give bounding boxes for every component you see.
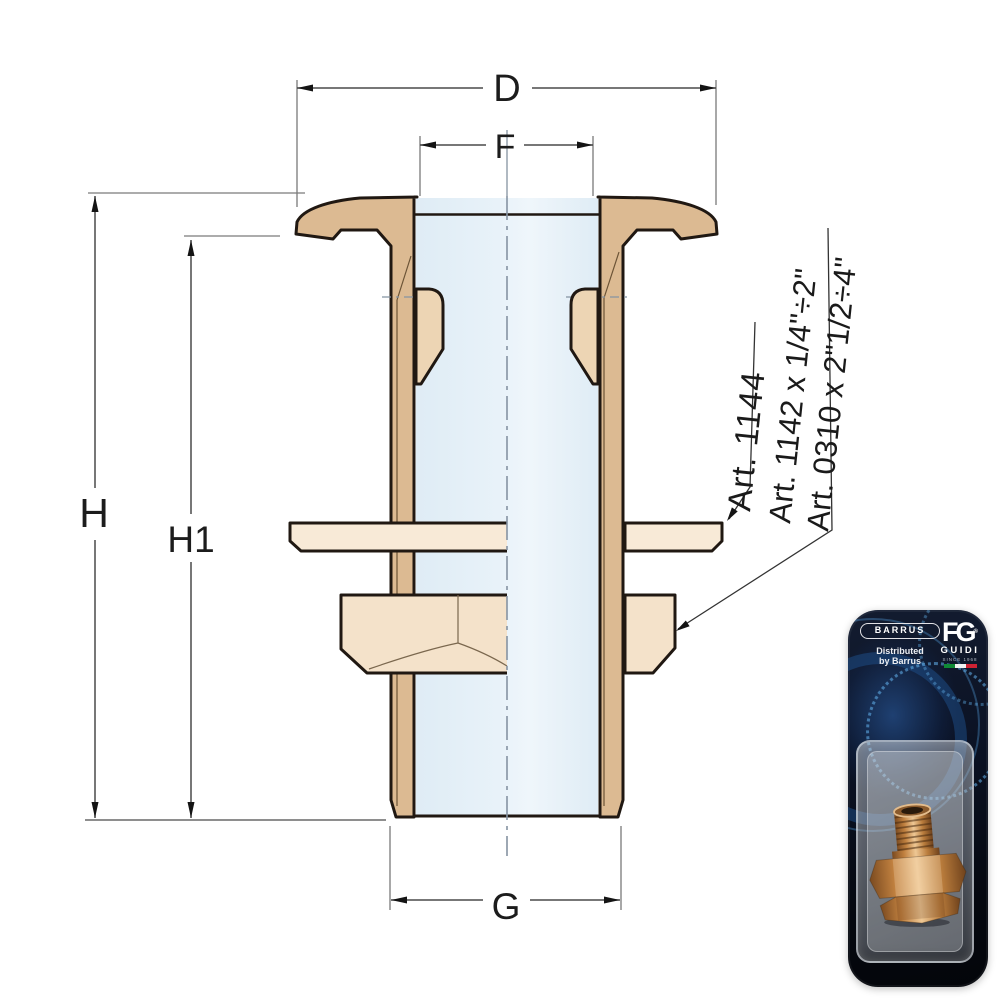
label-G: G (492, 886, 521, 927)
distributed-by-text: Distributed by Barrus (854, 646, 946, 666)
flange-right (598, 197, 717, 817)
barrus-badge: BARRUS (860, 623, 940, 639)
label-D: D (493, 68, 520, 110)
article-annotations: Art. 1144 Art. 1142 x 1/4"÷2" Art. 0310 … (720, 255, 864, 532)
guidi-monogram: FG® (936, 619, 984, 645)
barrus-badge-label: BARRUS (875, 625, 926, 635)
monogram-letters: FG (942, 617, 974, 647)
washer-left-fill (290, 523, 507, 551)
distributed-line2: by Barrus (854, 656, 946, 666)
guidi-logo: FG® GUIDI SINCE 1968 (936, 619, 984, 668)
guidi-wordmark: GUIDI (936, 645, 984, 656)
guidi-tagline: SINCE 1968 (936, 657, 984, 662)
flange-left (296, 197, 417, 817)
technical-drawing-canvas: D F G H H1 Art. 1144 Art. 1142 x 1/4"÷2"… (0, 0, 1000, 1000)
label-F: F (495, 128, 516, 166)
italy-flag-icon (936, 664, 984, 668)
registered-mark: ® (974, 629, 978, 635)
label-H1: H1 (167, 519, 214, 560)
washer-right (625, 523, 722, 551)
distributed-line1: Distributed (854, 646, 946, 656)
nut-right (625, 595, 675, 673)
product-packaging: BARRUS Distributed by Barrus FG® GUIDI S… (848, 610, 988, 987)
annotation-art-1144: Art. 1144 (720, 369, 771, 513)
nut-left-fill (341, 595, 507, 673)
fitting-body (290, 197, 722, 817)
label-H: H (79, 490, 109, 536)
